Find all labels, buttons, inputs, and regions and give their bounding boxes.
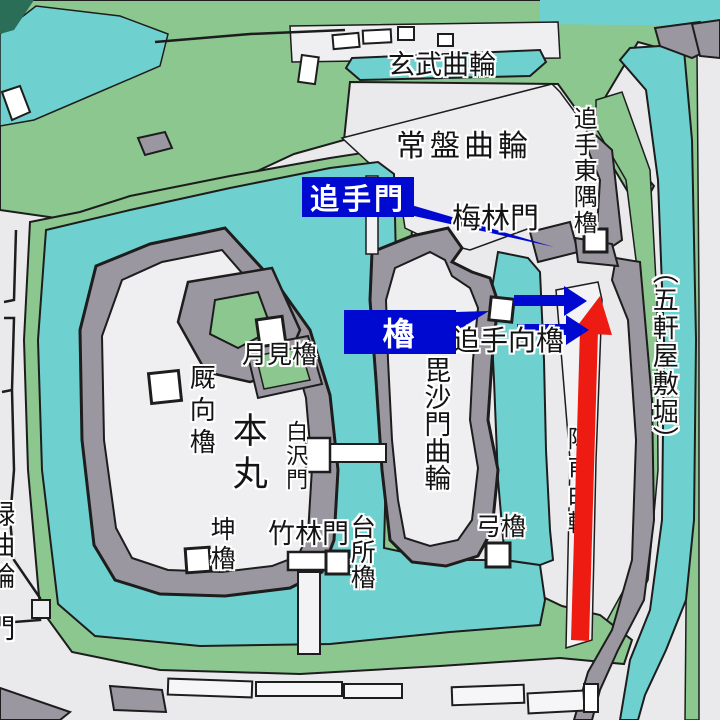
daidokoro-yagura-marker [326, 551, 349, 574]
label-honmaru: 本丸 [228, 412, 265, 498]
label-partial-gate: 門 [0, 614, 12, 641]
label-ote-higashi-sumi-yagura: 追手東隅櫓 [570, 106, 595, 236]
label-goken-yashiki-bori: （五軒屋敷堀） [649, 258, 676, 454]
label-ote-mukai-yagura: 追手向櫓 [452, 326, 564, 355]
castle-map-base [0, 0, 720, 720]
building [344, 684, 402, 698]
umaya-mukai-yagura-marker [149, 371, 182, 404]
label-hitsujisaru-yagura: 坤櫓 [208, 516, 234, 574]
castle-map: 玄武曲輪 常盤曲輪 梅林門 追手東隅櫓 （五軒屋敷堀） 追手向櫓 毘沙門曲輪 月… [0, 0, 720, 720]
building [584, 684, 598, 712]
building [452, 685, 525, 706]
ote-mukai-yagura-marker [489, 297, 514, 322]
building [438, 34, 453, 46]
building [168, 679, 253, 698]
yumi-yagura-marker [486, 543, 510, 567]
building [332, 33, 359, 49]
label-chikurin-mon: 竹林門 [268, 521, 349, 549]
chikurin-bridge [298, 572, 320, 654]
building [363, 29, 392, 43]
label-midori-kuruwa: 緑曲輪 [0, 500, 12, 593]
building [256, 682, 342, 696]
label-yumi-yagura: 弓櫓 [476, 514, 526, 540]
label-tokiwa-kuruwa: 常盤曲輪 [396, 131, 532, 163]
label-jinpo-kuruwa: 陣甫曲輪 [564, 426, 589, 538]
building [298, 55, 319, 84]
building [32, 600, 50, 618]
ote-mon-callout: 追手門 [302, 177, 414, 217]
label-genbu-kuruwa: 玄武曲輪 [388, 52, 496, 80]
label-umaya-mukai-yagura: 厩向櫓 [186, 364, 213, 460]
shirasawa-gate [306, 438, 330, 472]
label-daidokoro-yagura: 台所櫓 [348, 514, 374, 589]
label-tsukimi-yagura: 月見櫓 [242, 342, 317, 368]
building [398, 27, 414, 40]
building [528, 691, 585, 714]
label-shirasawa-mon: 白沢門 [283, 420, 306, 492]
label-bishamon-kuruwa: 毘沙門曲輪 [420, 356, 448, 491]
yagura-callout: 櫓 [344, 310, 456, 354]
chikurin-gate [288, 552, 326, 570]
wall-piece [110, 686, 166, 712]
label-bairin-mon: 梅林門 [452, 203, 539, 233]
